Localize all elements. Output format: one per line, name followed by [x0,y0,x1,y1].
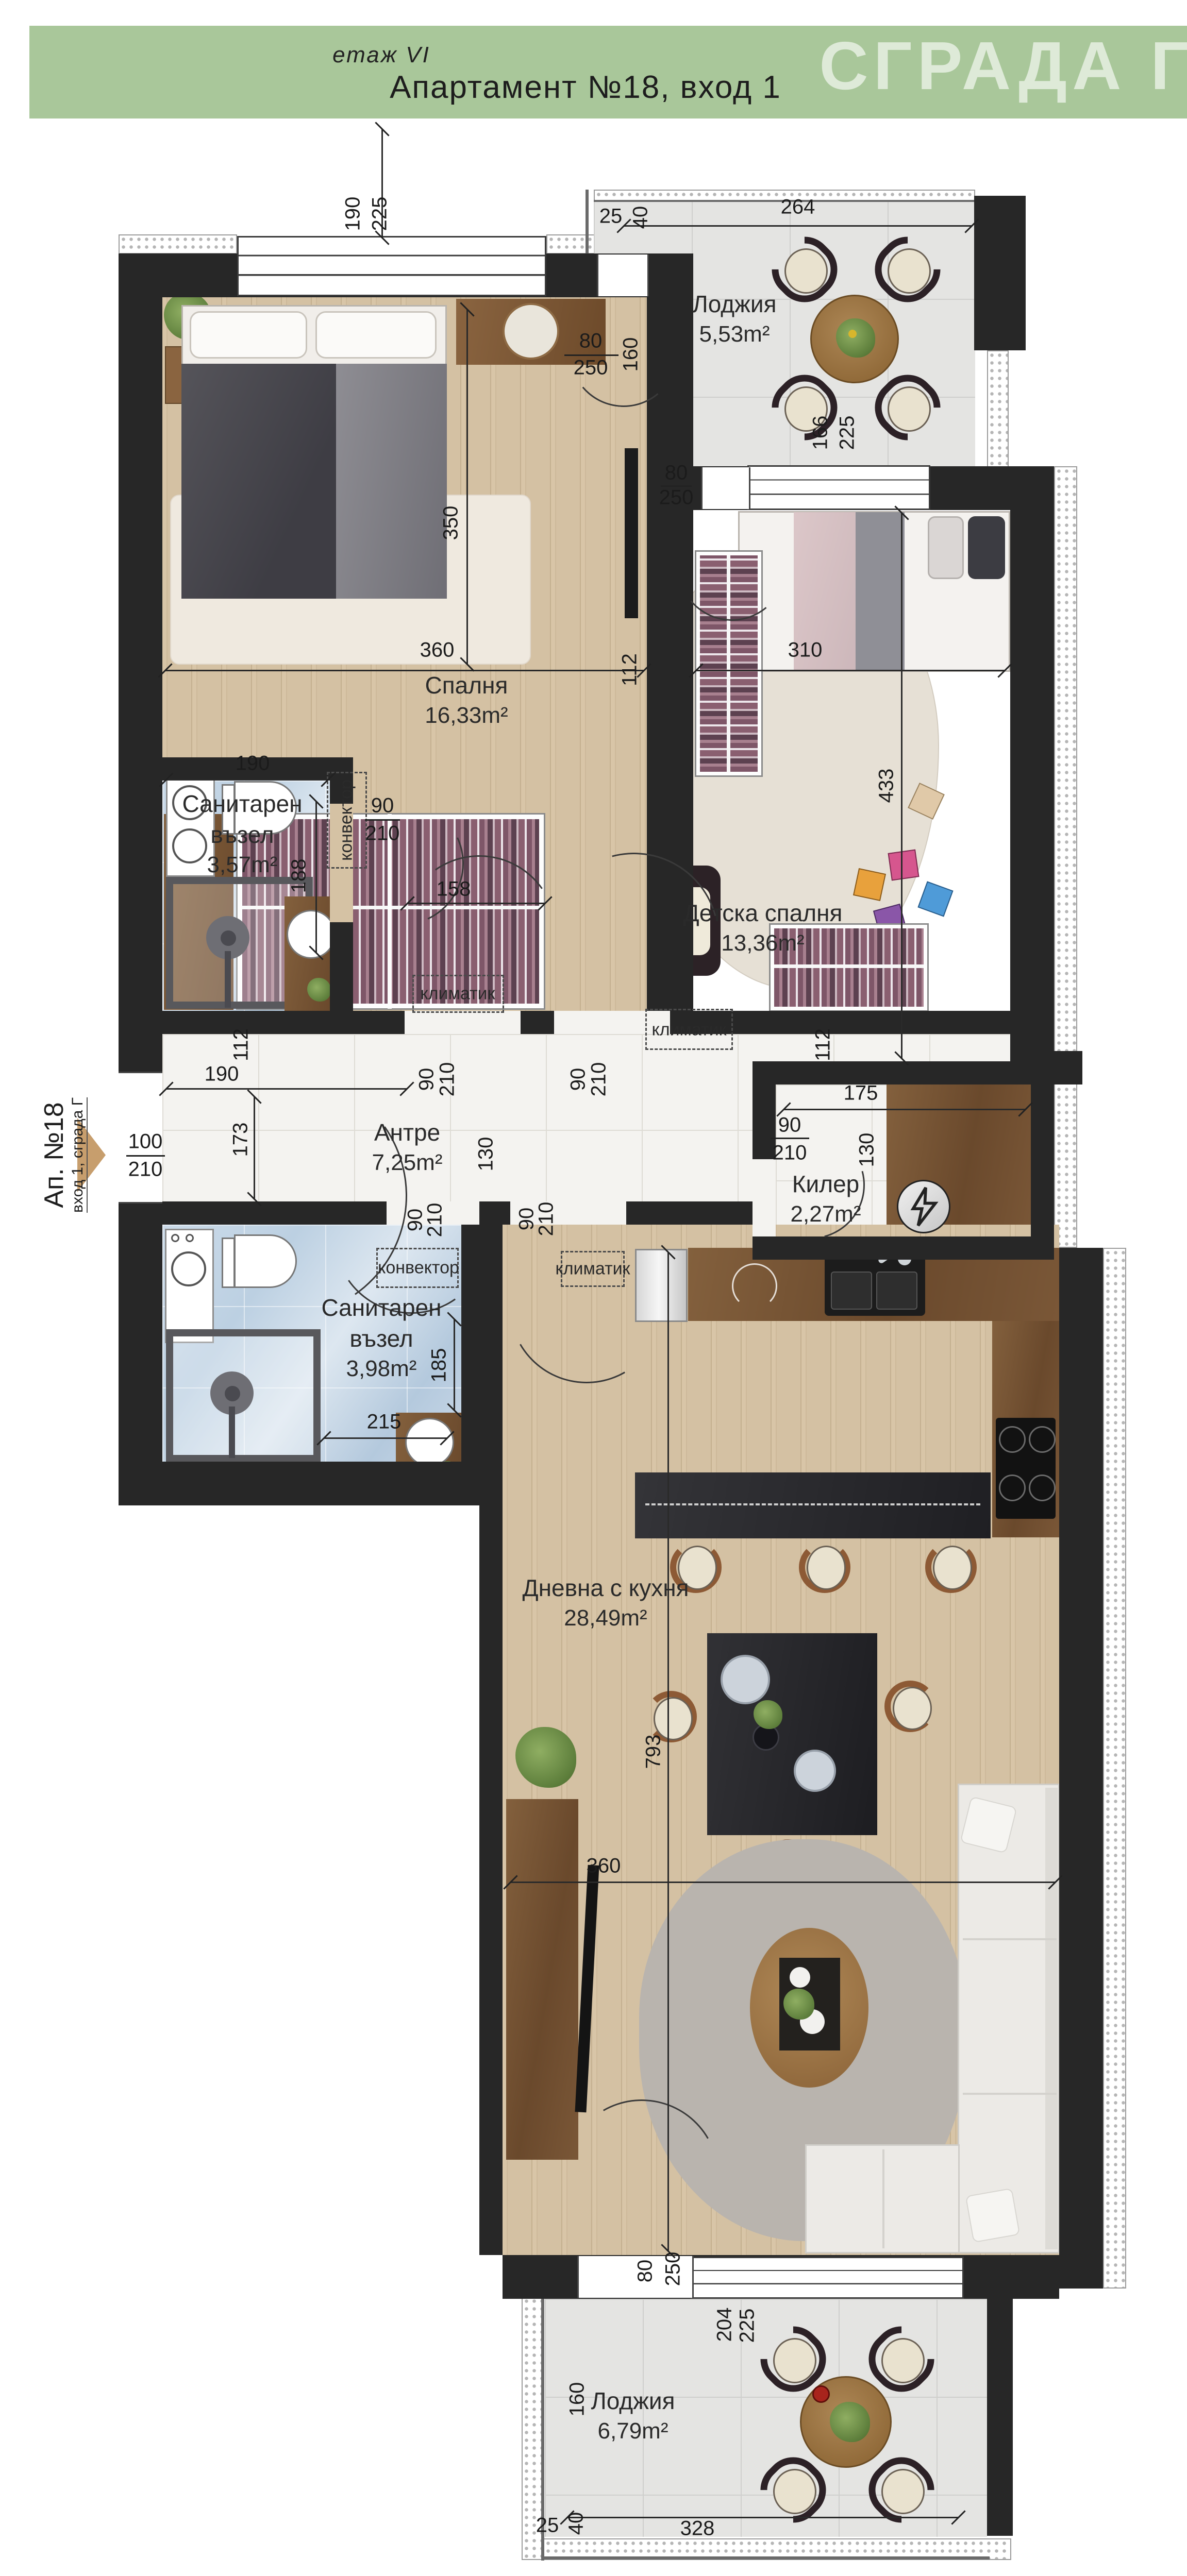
dim-label: 190 [236,752,270,775]
plate [794,1750,836,1792]
room-area: 3,57m² [182,850,302,880]
dim-label: 40 [565,2512,588,2535]
dim-label: 210 [773,1142,807,1165]
sink [287,910,336,959]
flowers [836,318,875,358]
sofa-back [1045,1788,1058,2249]
dim-label: 100 [128,1130,163,1154]
wall [1031,1061,1054,1260]
plate [721,1655,770,1704]
dim-line [407,903,545,904]
dim-label: 264 [781,196,815,219]
insulation-hatch [1054,466,1077,1062]
bar-chair-seat [933,1546,972,1590]
wall [479,1225,503,2255]
island-line [645,1503,980,1505]
dim-label: 130 [475,1137,498,1172]
wall [119,253,162,1072]
room-name: Спалня [425,670,508,701]
room-name: Санитарен [321,1292,441,1323]
dim-label: 25 [599,205,623,228]
loggia-chair-seat [773,2338,816,2383]
loggia-chair-seat [773,2469,816,2514]
dim-label: 80 [579,330,603,353]
room-area: 2,27m² [791,1199,861,1229]
dim-line [454,1319,455,1411]
ac-label: климатик [555,1259,630,1279]
dim-line [324,1437,447,1439]
dim-label: 210 [588,1062,611,1097]
page-title: Апартамент №18, вход 1 [390,69,781,106]
dim-label: 210 [424,1203,447,1238]
floor-label: етаж VI [332,42,430,68]
dim-line [315,801,317,953]
window [237,236,546,296]
room-name: Килер [791,1168,861,1199]
tv [625,448,638,618]
room-label-bath1: Санитарен възел 3,57m² [182,788,302,880]
floor-plan: етаж VI Апартамент №18, вход 1 СГРАДА Г [0,0,1187,2576]
sink-bowl [876,1272,917,1310]
bar-chair-seat [807,1546,846,1590]
door-gap [405,1011,521,1034]
room-label-loggia-bottom: Лоджия 6,79m² [591,2385,675,2446]
blanket [336,364,447,599]
kids-throw [856,512,905,671]
room-area: 16,33m² [425,701,508,731]
room-area: 13,36m² [683,928,843,958]
dim-label: 250 [662,2252,685,2286]
room-label-living: Дневна с кухня 28,49m² [522,1572,689,1633]
dim-line [624,225,972,227]
wall [522,2255,578,2299]
flower [848,330,857,338]
dim-label: 250 [659,486,694,510]
dim-label: 793 [642,1735,665,1769]
shower-rail [225,951,231,1008]
balcony-door-gap [701,467,750,509]
room-label-kids: Детска спалня 13,36m² [683,897,843,958]
plant [307,978,331,1002]
loggia-rail [541,2556,990,2560]
burner [1029,1475,1056,1501]
dim-label: 160 [566,2382,589,2417]
wall [987,2289,1013,2536]
pillow [190,311,307,359]
room-area: 28,49m² [522,1603,689,1633]
dim-label: 360 [587,1855,621,1878]
dim-label: 225 [369,197,392,231]
dim-label: 360 [420,639,455,662]
wall [1010,466,1054,1074]
dim-label: 310 [788,639,823,662]
dim-label: 40 [629,206,653,229]
insulation-hatch [1103,1248,1126,2289]
wall [753,1236,1054,1260]
room-area: 6,79m² [591,2416,675,2446]
room-area: 5,53m² [693,319,777,349]
dim-label: 90 [371,794,394,818]
loggia-chair-seat [784,248,828,294]
dim-fraction-line [771,1138,809,1139]
dim-label: 80 [634,2260,657,2283]
sofa-seam [963,1938,1057,1940]
room-name: възел [182,819,302,850]
burner [1029,1426,1056,1453]
dim-fraction-line [365,819,400,821]
dim-label: 112 [230,1028,253,1061]
dim-line [696,670,1005,671]
room-name: възел [321,1323,441,1354]
decor [790,1967,810,1988]
dim-label: 250 [574,357,608,380]
loggia-chair-seat [881,2338,925,2383]
building-label: СГРАДА Г [819,27,1187,105]
wall [753,1061,1054,1084]
dim-label: 130 [856,1133,879,1167]
entrance-apartment-label: Ап. №18 [39,1102,70,1208]
dim-line [165,670,644,671]
room-label-storage: Килер 2,27m² [791,1168,861,1229]
shower-head-center [225,1386,240,1401]
table-plant [754,1700,782,1729]
insulation-hatch [987,350,1009,467]
window [747,465,930,510]
wall [1059,1248,1103,2289]
pillow [968,516,1005,579]
loggia-chair-seat [881,2469,925,2514]
dim-label: 210 [535,1202,558,1236]
dim-label: 215 [367,1411,402,1434]
wall [1010,1051,1082,1084]
shower-rail [229,1406,235,1458]
wall [974,196,1026,350]
ac-label: климатик [651,1020,726,1040]
dim-label: 190 [342,197,365,231]
balcony-door-gap [597,255,649,296]
counter-decor [732,1263,777,1309]
burner [999,1426,1026,1453]
dim-label: 173 [229,1123,253,1157]
shower-head-center [221,930,236,946]
tv-console [506,1799,578,2160]
dim-label: 433 [875,769,898,803]
dim-label: 190 [205,1063,239,1086]
dim-label: 160 [620,337,643,372]
entrance-sub-label: вход 1, сграда Г [69,1097,88,1213]
duvet [181,364,336,599]
dim-label: 158 [437,878,471,901]
sink-bowl [831,1272,872,1310]
dim-label: 112 [618,653,642,686]
dim-label: 210 [436,1062,459,1097]
dim-line [510,1882,1056,1883]
dim-line [166,1088,407,1090]
dim-label: 175 [844,1082,878,1105]
electrical-panel-icon [897,1180,950,1233]
dim-label: 90 [778,1114,801,1137]
coffee-cup [812,2385,830,2403]
dim-line [667,1252,669,2251]
dim-label: 112 [812,1028,835,1061]
room-label-bedroom: Спалня 16,33m² [425,670,508,731]
room-area: 3,98m² [321,1354,441,1384]
dim-label: 80 [665,462,688,485]
mirror [503,303,559,360]
title-bar: етаж VI Апартамент №18, вход 1 СГРАДА Г [29,26,1187,118]
dim-label: 25 [536,2514,559,2537]
room-label-loggia-top: Лоджия 5,53m² [693,289,777,349]
loggia-chair-seat [888,386,931,432]
sink [405,1418,454,1467]
pillow [315,311,437,359]
dim-label: 225 [736,2309,759,2343]
toy-block [853,868,886,901]
room-name: Лоджия [693,289,777,319]
window [691,2257,964,2299]
dim-label: 90 [567,1068,590,1091]
dim-fraction-line [126,1155,165,1157]
dim-line [466,309,468,665]
insulation-hatch [1054,1061,1077,1248]
burner [999,1475,1026,1501]
wall [119,1200,162,1505]
convector-label: конвектор [337,779,357,861]
loggia-rail [586,190,589,253]
ac-label: климатик [420,984,495,1004]
pillow [928,516,964,579]
sofa-seam [882,2149,884,2248]
dim-line [783,1109,1026,1110]
room-name: Дневна с кухня [522,1572,689,1603]
dining-chair-seat [654,1697,693,1740]
sofa-seam [963,2093,1057,2095]
sofa [958,1784,1060,2253]
convector-label: конвектор [378,1258,459,1278]
room-label-bath2: Санитарен възел 3,98m² [321,1292,441,1384]
dim-label: 350 [440,506,463,540]
sofa-pillow [965,2188,1021,2243]
room-area: 7,25m² [372,1148,443,1178]
table-plant [783,1989,814,2020]
insulation-hatch [119,234,237,254]
dim-label: 90 [415,1068,439,1091]
kitchen-island [635,1472,991,1538]
dim-label: 328 [680,2517,715,2540]
dim-label: 204 [713,2308,737,2342]
dim-line [567,2517,959,2518]
dim-line [901,513,902,1059]
toy-block [888,850,919,881]
room-name: Антре [372,1117,443,1148]
wall [119,1462,484,1505]
room-name: Детска спалня [683,897,843,928]
dim-line [254,1096,255,1199]
room-name: Санитарен [182,788,302,819]
dim-line [166,779,328,781]
room-name: Лоджия [591,2385,675,2416]
room-label-hall: Антре 7,25m² [372,1117,443,1178]
dim-label: 225 [836,416,859,450]
dim-label: 210 [365,822,400,845]
dim-label: 210 [128,1158,163,1181]
loggia-chair-seat [888,248,931,294]
dining-chair-seat [893,1687,932,1730]
dim-label: 166 [809,416,832,450]
